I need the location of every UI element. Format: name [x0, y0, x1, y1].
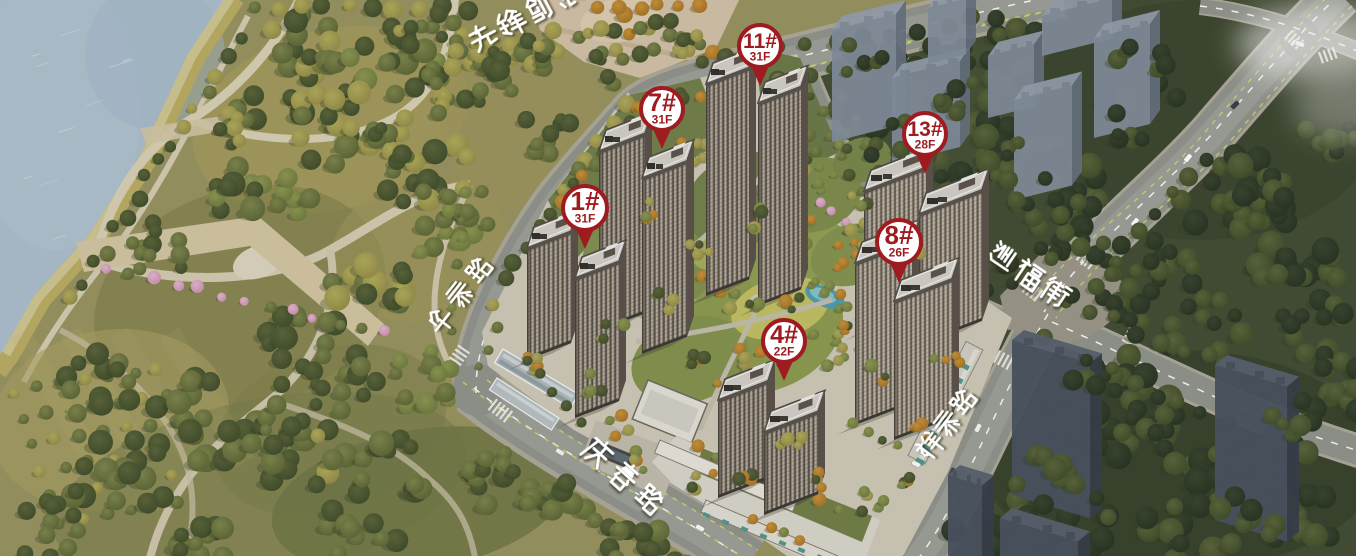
svg-text:26F: 26F [889, 246, 910, 260]
svg-text:31F: 31F [750, 50, 771, 64]
svg-text:28F: 28F [915, 138, 936, 152]
svg-text:31F: 31F [575, 212, 596, 226]
svg-text:31F: 31F [652, 113, 673, 127]
svg-text:22F: 22F [774, 345, 795, 359]
